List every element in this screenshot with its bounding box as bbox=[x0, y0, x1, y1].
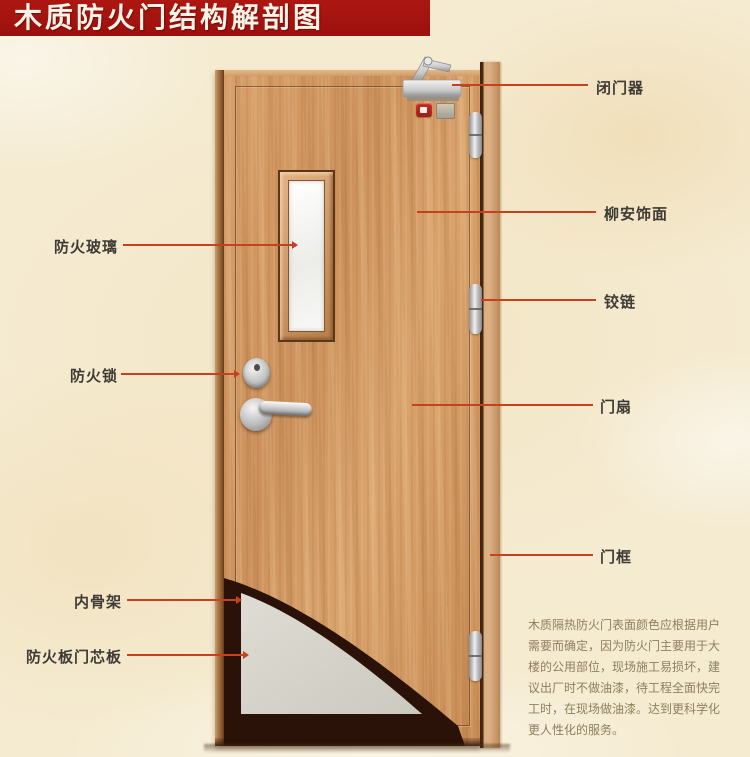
description-line: 更人性化的服务。 bbox=[528, 720, 728, 741]
label-door-closer: 闭门器 bbox=[596, 77, 644, 98]
fire-glass-window bbox=[278, 170, 335, 342]
label-lauan-veneer: 柳安饰面 bbox=[604, 203, 668, 224]
keyhole-icon bbox=[254, 364, 260, 371]
callout-line-lauan-veneer bbox=[417, 211, 596, 213]
page-title: 木质防火门结构解剖图 bbox=[0, 0, 430, 36]
description-line: 议出厂时不做油漆，待工程全面快完 bbox=[528, 678, 728, 699]
label-door-leaf: 门扇 bbox=[600, 396, 632, 417]
hinge-bottom bbox=[469, 631, 482, 681]
label-hinge: 铰链 bbox=[604, 291, 636, 312]
label-inner-skeleton: 内骨架 bbox=[28, 591, 122, 612]
hinge-middle bbox=[469, 284, 482, 334]
alarm-indicator bbox=[416, 103, 432, 117]
callout-line-hinge bbox=[481, 299, 596, 301]
closer-body-shadow bbox=[407, 97, 459, 101]
callout-line-inner-skeleton bbox=[127, 599, 237, 601]
description-paragraph: 木质隔热防火门表面颜色应根据用户 需要而确定，因为防火门主要用于大 楼的公用部位… bbox=[528, 615, 728, 741]
core-board-shape bbox=[241, 593, 422, 714]
callout-line-fire-lock bbox=[121, 373, 235, 375]
callout-line-door-leaf bbox=[412, 404, 593, 406]
callout-line-fire-glass bbox=[123, 244, 293, 246]
description-line: 工时，在现场做油漆。达到更科学化 bbox=[528, 699, 728, 720]
label-core-board: 防火板门芯板 bbox=[8, 646, 122, 667]
fire-door-diagram: 木质防火门结构解剖图 bbox=[0, 0, 750, 757]
label-fire-lock: 防火锁 bbox=[28, 365, 118, 386]
door-leaf-left-edge bbox=[215, 70, 224, 746]
callout-line-core-board bbox=[127, 654, 244, 656]
closer-pivot bbox=[424, 57, 432, 65]
door-handle bbox=[259, 401, 313, 417]
fire-glass-pane bbox=[288, 180, 325, 332]
label-door-frame: 门框 bbox=[600, 546, 632, 567]
label-fire-glass: 防火玻璃 bbox=[28, 236, 118, 257]
access-plate bbox=[436, 103, 455, 119]
callout-line-door-closer bbox=[452, 84, 588, 86]
closer-body bbox=[403, 80, 461, 97]
description-line: 需要而确定，因为防火门主要用于大 bbox=[528, 636, 728, 657]
fire-lock-cylinder bbox=[243, 358, 270, 388]
floor-shadow bbox=[204, 744, 510, 753]
hinge-top bbox=[469, 112, 482, 158]
door-closer bbox=[398, 52, 470, 104]
description-line: 楼的公用部位，现场施工易损坏，建 bbox=[528, 657, 728, 678]
cutaway-section bbox=[224, 572, 480, 746]
description-line: 木质隔热防火门表面颜色应根据用户 bbox=[528, 615, 728, 636]
callout-line-door-frame bbox=[490, 554, 593, 556]
